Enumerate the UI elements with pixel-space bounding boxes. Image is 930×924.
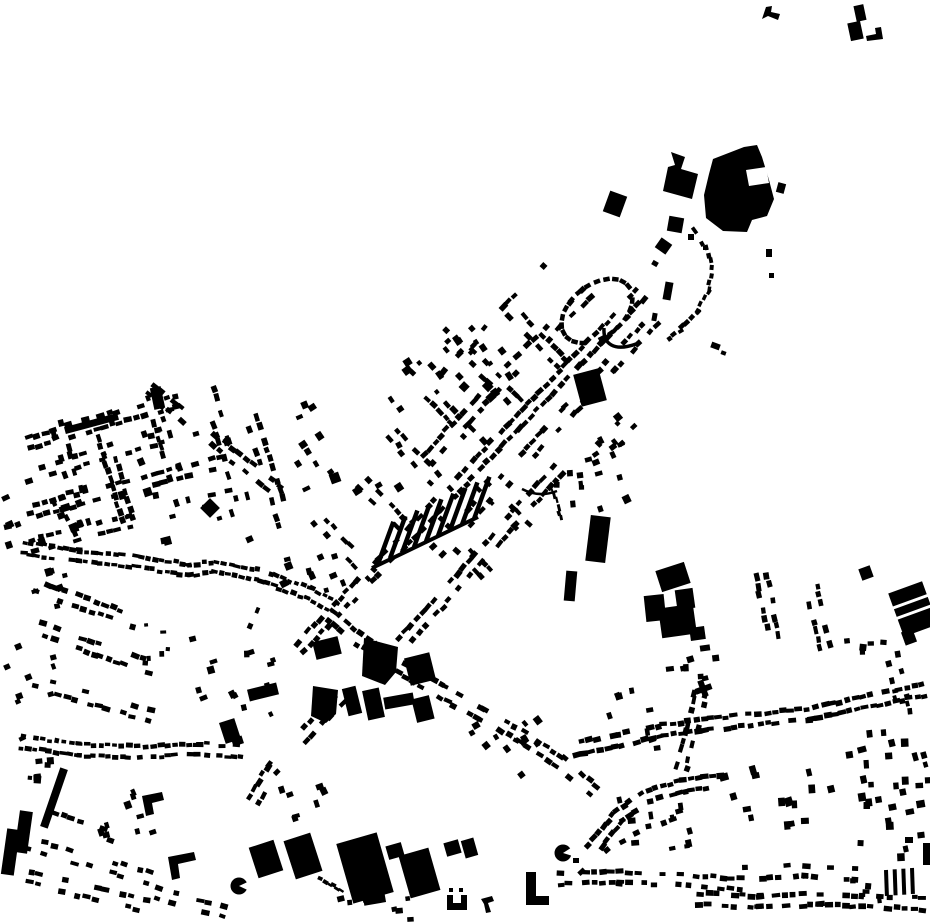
building [766,904,773,909]
building [193,752,200,757]
building [885,752,893,759]
building [894,650,901,657]
building [816,636,821,643]
building [858,893,864,899]
building [726,885,734,890]
building [727,876,735,880]
building [91,560,98,565]
building [815,902,823,907]
building [105,754,110,759]
building [677,720,684,727]
building [90,753,96,758]
building [923,843,930,865]
building [835,902,841,907]
building [249,567,254,572]
building [784,821,791,830]
building [631,840,639,846]
building [683,664,689,671]
building [204,753,210,758]
building [459,888,463,892]
building [706,890,714,896]
building [176,572,183,578]
building [151,754,157,759]
building [799,904,808,909]
building [45,748,52,754]
building [591,869,597,874]
building [76,560,82,564]
building [802,863,811,869]
building [916,800,926,809]
building [35,758,42,764]
building [899,698,906,704]
building [911,907,918,911]
building [918,896,926,900]
building-footprint-map [0,0,930,924]
building [111,563,117,567]
building [634,871,641,875]
building [187,572,194,578]
building [147,656,151,661]
building [125,564,132,569]
building [230,754,237,759]
building [68,558,76,563]
building [99,753,105,757]
building [782,903,791,908]
building [666,666,675,672]
building [677,872,684,876]
building [782,892,788,898]
building [204,741,210,745]
building [599,869,607,875]
building [886,822,894,830]
building [106,551,111,556]
building [582,870,590,874]
building [858,792,867,801]
building [894,904,901,910]
building [790,892,796,898]
building [701,884,708,889]
building [625,880,633,886]
building [783,863,791,868]
building [770,597,775,603]
building [844,877,850,882]
building [76,742,83,746]
building [788,718,796,723]
building [160,537,168,545]
building [851,893,858,899]
building [28,869,35,875]
building [660,872,666,876]
building [609,880,616,885]
building [573,858,579,863]
building [49,557,55,561]
building [347,900,352,906]
building [616,869,623,873]
building [852,866,858,871]
building [99,743,104,748]
building [905,638,909,643]
building [592,880,598,885]
building [208,561,213,566]
building [577,472,584,479]
building [97,561,102,566]
building [186,743,192,747]
building [709,774,716,779]
building [731,904,737,910]
building [842,903,850,909]
building [179,742,185,747]
building [883,906,892,912]
building [875,796,882,803]
building [731,725,738,731]
building [704,902,712,907]
building [709,273,714,279]
building [766,874,773,880]
building [765,720,771,725]
building [395,908,403,914]
building [62,877,69,883]
building [142,660,148,665]
building [917,832,925,839]
building [825,902,833,908]
building [897,853,905,861]
building [599,881,606,886]
building [237,754,243,759]
building [850,878,856,883]
building [606,869,614,873]
building [675,882,681,888]
building [761,607,766,614]
building [33,735,39,740]
building [150,744,157,749]
building [615,732,621,738]
building [801,818,809,825]
building [567,470,573,477]
building [696,892,704,897]
building [570,500,576,507]
building [844,638,850,644]
building [157,742,165,747]
building [91,743,97,748]
building [695,902,703,908]
building [881,729,887,736]
building [723,726,731,732]
building [84,550,89,554]
building [747,723,753,729]
building [166,647,170,651]
building [91,550,99,555]
building [645,823,652,829]
building [737,875,745,880]
building [738,723,745,729]
building [695,786,702,791]
building [902,906,908,910]
building [863,802,870,809]
building [105,743,110,746]
building [786,708,794,712]
building [233,743,240,747]
building [899,788,907,796]
building [152,492,159,499]
building [907,708,912,715]
building [756,894,765,900]
building [667,216,684,233]
building [709,265,713,270]
building [863,889,870,894]
building [58,888,66,895]
building [143,744,149,749]
building [817,892,824,896]
building [707,715,714,720]
building [915,783,923,789]
building [857,840,863,846]
building [651,883,657,888]
building [925,777,930,784]
building [827,865,834,870]
building [625,870,633,875]
building [670,722,676,726]
building [905,837,913,843]
building [868,782,874,788]
building [84,742,90,746]
building [149,566,154,571]
building [808,784,815,793]
building [144,623,148,627]
building [877,896,882,903]
building [799,891,807,896]
building [126,742,133,747]
building [218,744,225,748]
building [164,753,171,757]
building [867,904,874,909]
building [712,655,720,662]
building [159,651,164,657]
building [172,743,178,747]
building [596,747,604,754]
building [196,742,203,747]
building [713,890,719,896]
building [118,744,124,749]
building [707,726,714,731]
building [157,570,163,575]
building [763,572,770,580]
building [558,883,565,888]
building [554,482,560,488]
building [557,870,565,876]
building [901,738,909,747]
building [661,733,669,738]
building [747,894,755,900]
building [766,249,772,257]
building [134,744,141,749]
building [745,711,751,715]
building [679,777,687,783]
building [675,588,696,610]
building [868,641,874,645]
building [170,570,177,575]
building [911,683,918,689]
building [47,739,52,743]
building [160,630,166,633]
building [83,559,88,563]
building [793,873,799,879]
building [803,707,809,712]
building [159,755,164,759]
building [865,883,872,890]
building [722,904,729,908]
building [880,640,887,646]
building [720,875,728,881]
building [754,711,762,717]
building [616,881,623,887]
building [685,882,691,888]
building [670,730,677,736]
building [255,566,261,572]
building [689,626,706,641]
building [700,773,709,779]
building [858,903,866,909]
building [845,751,853,759]
building [219,570,225,576]
building [794,706,802,711]
building [194,562,201,568]
building [579,485,584,490]
building [863,760,869,769]
building [849,904,856,909]
building [769,273,774,278]
building [756,903,764,909]
building [61,740,66,744]
building [164,743,171,748]
building [742,865,748,870]
building [919,908,927,914]
building [112,755,118,760]
building [759,876,767,882]
building [41,555,46,560]
building [144,565,150,570]
building [893,782,899,789]
building [49,543,56,547]
building [18,747,23,751]
building [731,893,739,899]
building [902,776,909,784]
building [187,752,194,756]
building [904,685,910,691]
building [34,773,41,778]
building [842,892,850,898]
building [612,277,619,282]
building [746,167,769,186]
building [76,549,83,555]
building [772,710,779,715]
building [165,570,170,574]
building [77,753,82,758]
building [405,896,410,901]
building [136,565,141,569]
building [628,817,636,824]
building [582,880,590,886]
building [24,746,32,752]
building [688,234,694,240]
building [449,888,453,892]
building [407,917,414,922]
building [722,716,728,721]
building [807,902,813,908]
building [641,880,647,885]
building [28,776,33,780]
building [654,745,661,751]
building [659,722,667,727]
building [775,875,782,880]
building [69,741,75,746]
building [47,757,54,765]
building [887,895,893,900]
building [124,755,130,760]
building [801,873,809,879]
figure-ground-map-canvas [0,0,930,924]
building [703,874,709,879]
building [216,753,222,758]
building [143,897,151,904]
building [693,717,700,723]
building [164,560,171,564]
building [202,570,209,576]
building [119,891,127,898]
building [137,867,144,873]
building [747,905,753,910]
building [912,895,918,899]
building [811,874,819,880]
building [564,881,572,886]
building [710,873,716,878]
building [915,694,921,699]
building [112,743,117,747]
building [737,887,743,893]
building [860,648,865,655]
building [739,892,745,896]
building [202,560,207,565]
building [187,562,192,567]
building [84,755,91,759]
building [137,755,143,760]
building [779,707,787,713]
building [866,730,873,738]
